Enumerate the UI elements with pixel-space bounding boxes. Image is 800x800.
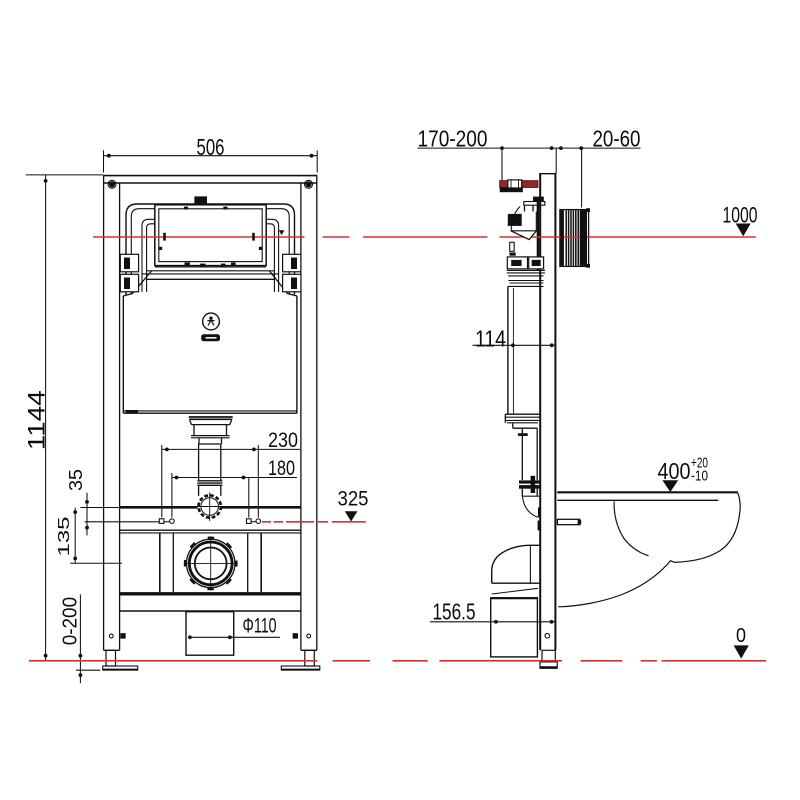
svg-text:20-60: 20-60	[593, 126, 641, 152]
svg-text:135: 135	[56, 516, 73, 556]
svg-text:1144: 1144	[24, 390, 51, 450]
svg-text:0-200: 0-200	[60, 597, 82, 645]
svg-text:325: 325	[338, 488, 369, 511]
svg-text:170-200: 170-200	[418, 126, 488, 152]
svg-text:180: 180	[268, 457, 295, 480]
svg-text:114: 114	[475, 326, 506, 352]
svg-text:230: 230	[268, 429, 298, 452]
svg-text:156.5: 156.5	[433, 599, 476, 625]
svg-text:35: 35	[66, 469, 86, 491]
svg-text:Φ110: Φ110	[243, 615, 277, 638]
svg-text:-10: -10	[691, 468, 708, 485]
svg-text:506: 506	[197, 134, 225, 160]
svg-text:400: 400	[658, 458, 691, 484]
svg-text:1000: 1000	[723, 203, 758, 228]
svg-text:0: 0	[736, 625, 746, 647]
